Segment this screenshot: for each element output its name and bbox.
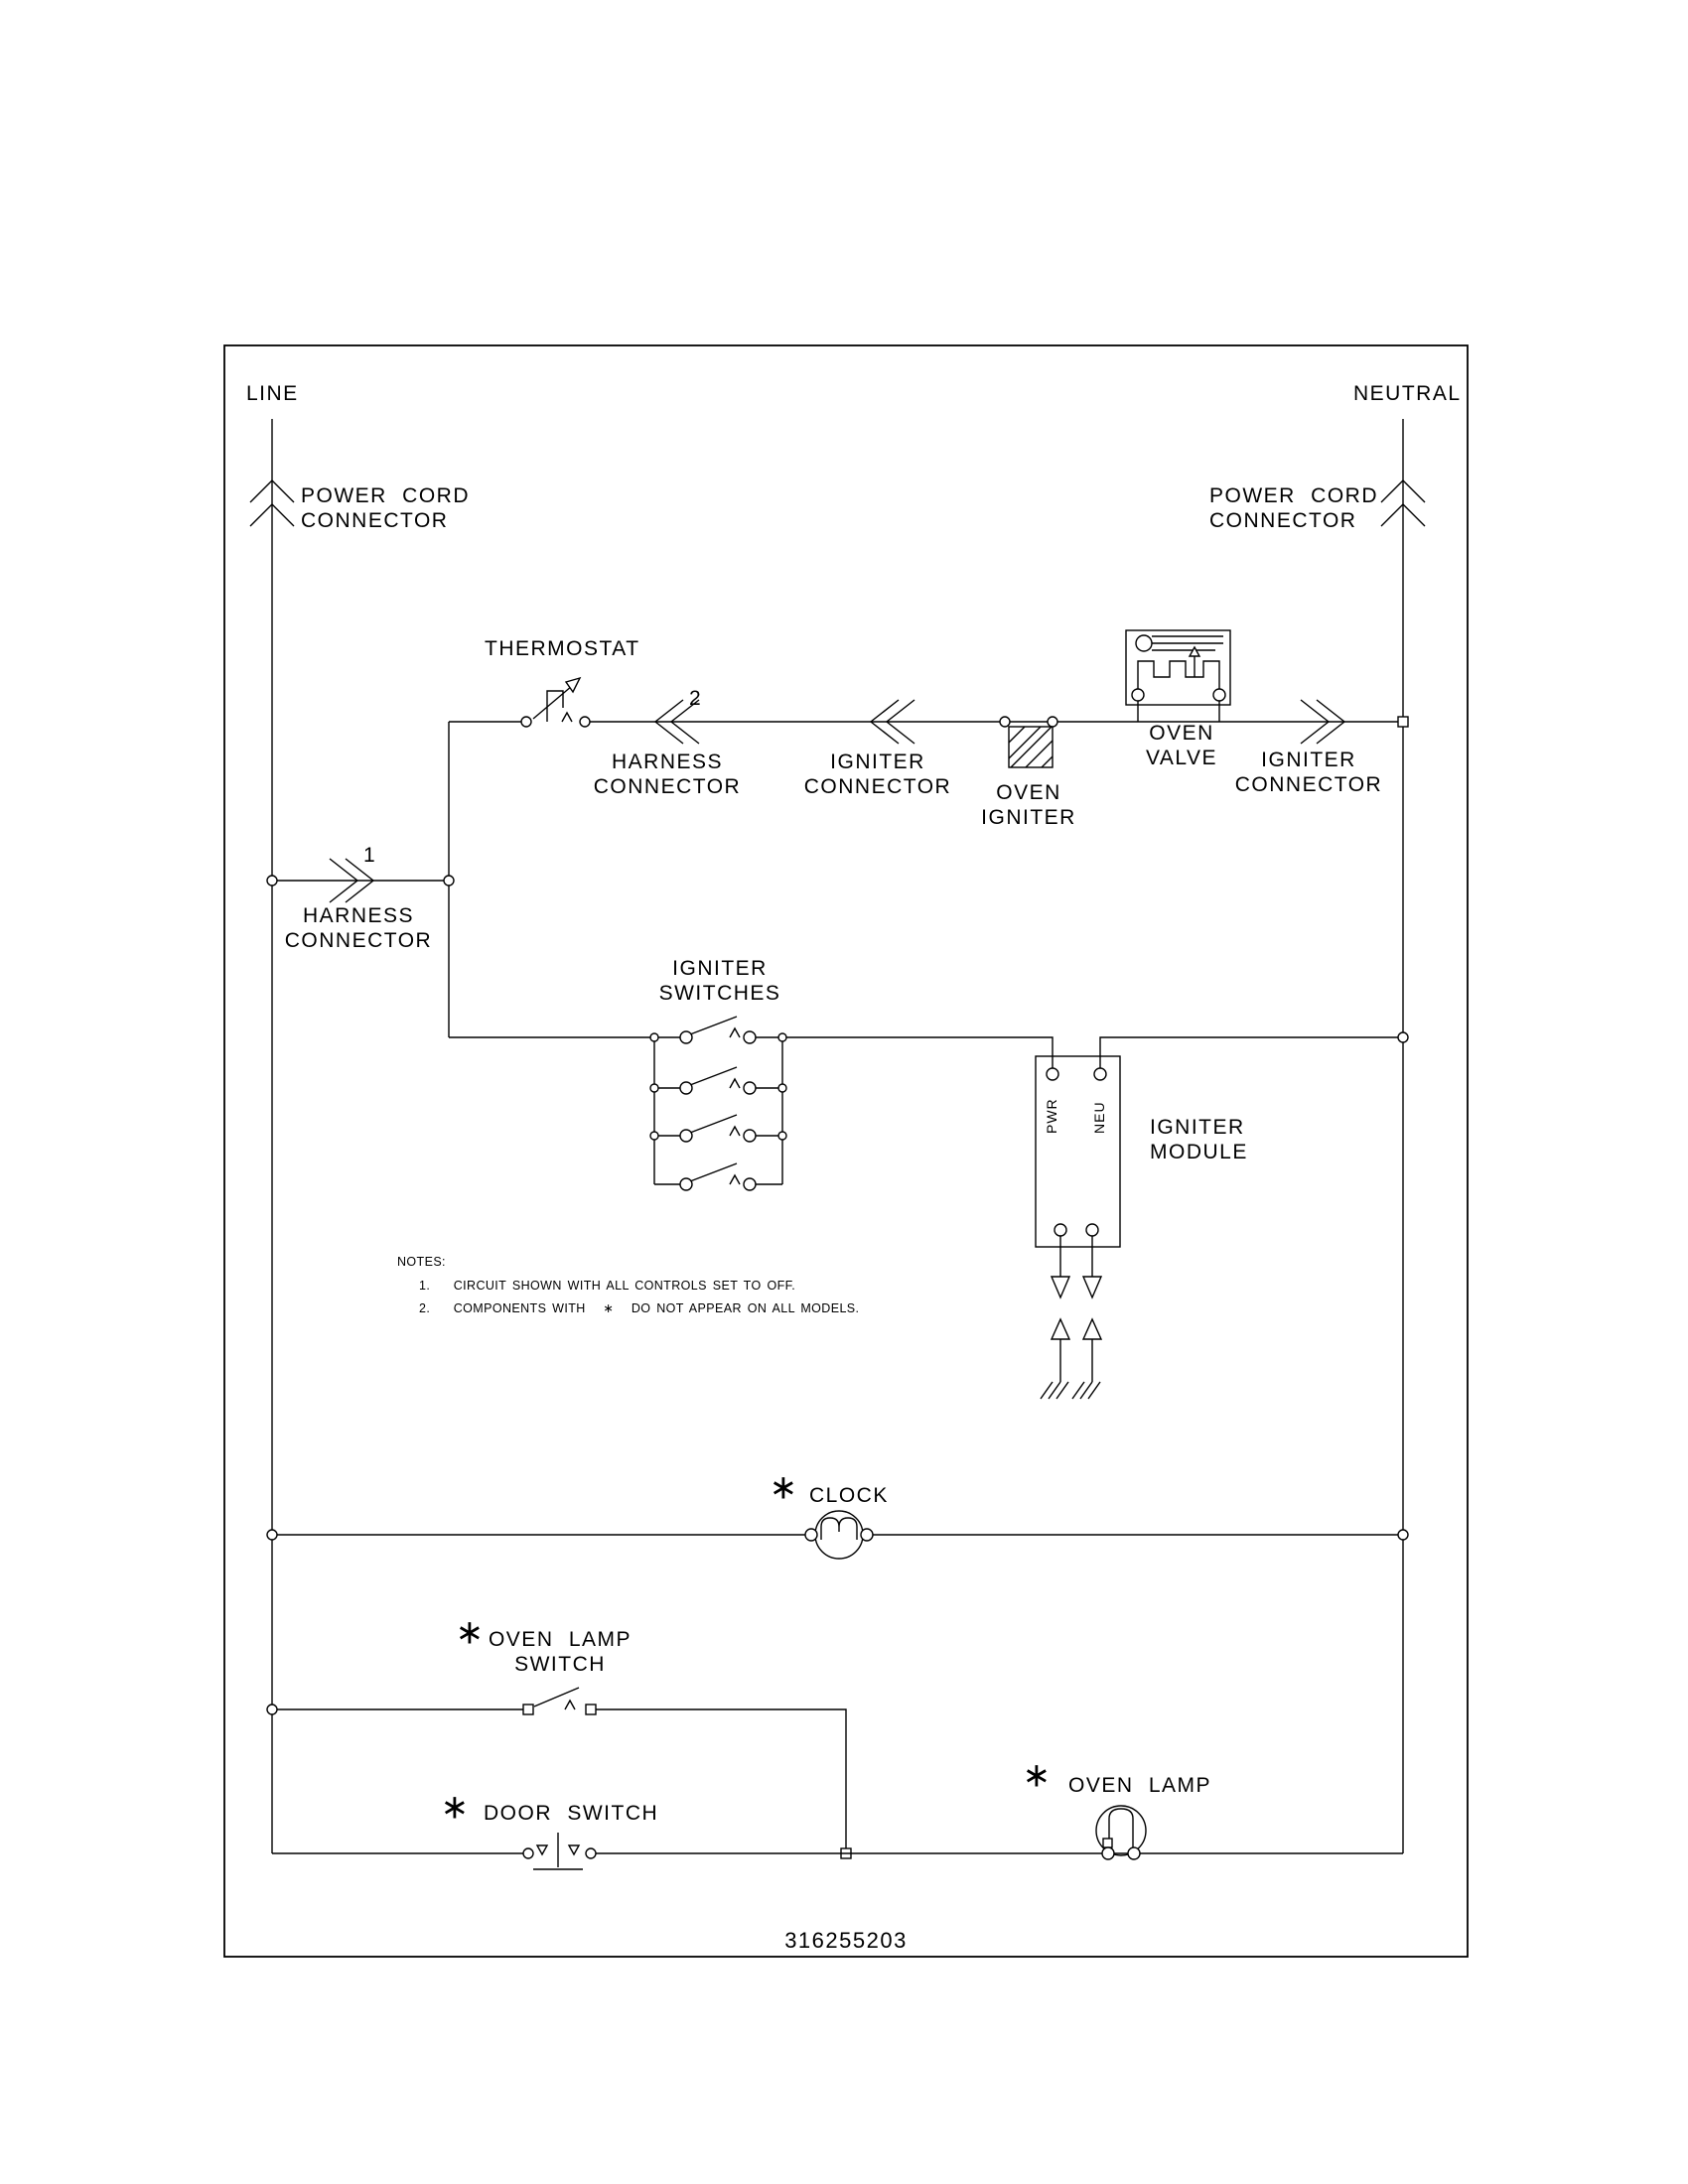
power-cord-connector-left-label: POWER CORD CONNECTOR <box>301 483 470 533</box>
igniter-module-label: IGNITER MODULE <box>1150 1115 1248 1164</box>
pwr-terminal-label: PWR <box>1044 1098 1059 1134</box>
oven-valve-symbol <box>1126 630 1230 722</box>
thermostat-label: THERMOSTAT <box>485 636 640 661</box>
schematic-sheet: LINE NEUTRAL POWER CORD CONNECTOR POWER … <box>0 0 1688 2184</box>
asterisk-icon: ∗ <box>1023 1759 1052 1793</box>
igniter-switches-symbol <box>449 1017 1053 1190</box>
harness-connector-2-label: HARNESS CONNECTOR <box>566 750 769 799</box>
connector-ref-2-label: 2 <box>689 686 702 711</box>
harness-connector-1-label: HARNESS CONNECTOR <box>257 903 460 953</box>
line-label: LINE <box>246 381 299 406</box>
power-cord-connector-right-label: POWER CORD CONNECTOR <box>1209 483 1378 533</box>
harness-connector-1-symbol <box>267 859 454 902</box>
part-number: 316255203 <box>697 1928 995 1954</box>
oven-lamp-label: OVEN LAMP <box>1068 1773 1211 1798</box>
wiring-diagram-linework <box>0 0 1688 2184</box>
igniter-switches-label: IGNITER SWITCHES <box>619 956 821 1006</box>
connector-ref-1-label: 1 <box>363 843 376 868</box>
door-switch-symbol <box>523 1833 596 1869</box>
oven-igniter-symbol <box>1000 717 1057 767</box>
clock-symbol <box>267 1511 1408 1559</box>
door-switch-label: DOOR SWITCH <box>484 1801 658 1826</box>
neutral-label: NEUTRAL <box>1353 381 1462 406</box>
note-line-2: 2. COMPONENTS WITH ∗ DO NOT APPEAR ON AL… <box>419 1300 859 1315</box>
note-line-1: 1. CIRCUIT SHOWN WITH ALL CONTROLS SET T… <box>419 1279 795 1293</box>
igniter-connector-mid-label: IGNITER CONNECTOR <box>769 750 987 799</box>
spark-electrodes-symbol <box>1041 1236 1101 1399</box>
oven-igniter-label: OVEN IGNITER <box>959 780 1098 830</box>
junction-node-square <box>1398 717 1408 727</box>
clock-label: CLOCK <box>809 1483 889 1508</box>
oven-lamp-switch-label: OVEN LAMP SWITCH <box>459 1627 661 1677</box>
asterisk-icon: ∗ <box>770 1471 798 1505</box>
asterisk-icon: ∗ <box>441 1791 470 1825</box>
thermostat-symbol <box>521 678 590 727</box>
oven-lamp-switch-symbol <box>267 1688 851 1858</box>
igniter-connector-right-label: IGNITER CONNECTOR <box>1199 748 1418 797</box>
notes-title: NOTES: <box>397 1255 446 1269</box>
neu-terminal-label: NEU <box>1091 1101 1107 1134</box>
